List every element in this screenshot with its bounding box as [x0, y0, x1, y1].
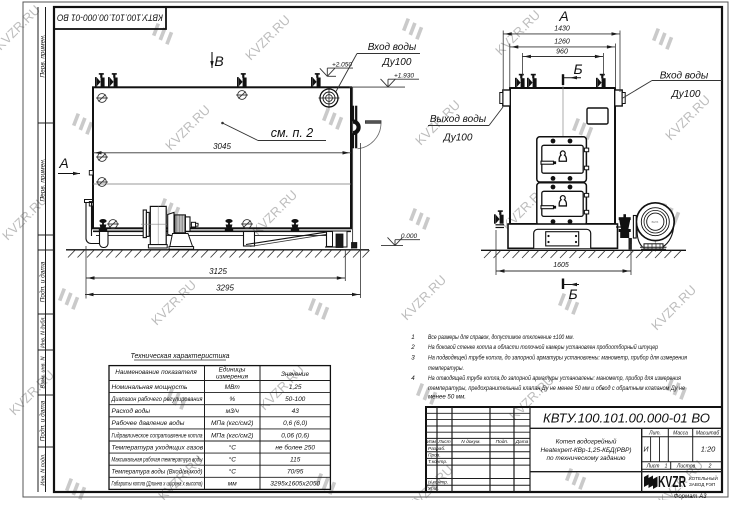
svg-text:1430: 1430 [554, 26, 570, 33]
svg-text:Инв. N дубл.: Инв. N дубл. [41, 316, 47, 348]
svg-text:Температура уходящих газов: Температура уходящих газов [112, 443, 204, 451]
svg-text:N докум.: N докум. [461, 439, 480, 445]
svg-text:Н.контр.: Н.контр. [428, 479, 448, 485]
svg-text:Гидравлическое сопративление к: Гидравлическое сопративление котла [112, 431, 203, 439]
svg-text:Масса: Масса [673, 431, 688, 437]
svg-text:1: 1 [665, 464, 668, 470]
svg-text:Перв. примен.: Перв. примен. [40, 158, 47, 201]
svg-text:Б: Б [573, 61, 582, 77]
svg-text:КВТУ.100.101.00.000-01 ВО: КВТУ.100.101.00.000-01 ВО [543, 411, 710, 426]
svg-text:КВТУ.100.101.00.000-01 ВО: КВТУ.100.101.00.000-01 ВО [56, 12, 163, 23]
svg-text:МВт: МВт [225, 384, 241, 391]
svg-text:м3/ч: м3/ч [226, 408, 240, 415]
svg-text:°С: °С [229, 443, 237, 451]
svg-text:Вход воды: Вход воды [660, 71, 709, 82]
svg-text:температуры, предохранительный: температуры, предохранительный клапан Ду… [428, 385, 685, 392]
svg-text:4: 4 [411, 375, 415, 382]
svg-text:ЗАВОД РЭП: ЗАВОД РЭП [689, 482, 715, 487]
svg-text:3295: 3295 [216, 284, 234, 293]
svg-text:см. п. 2: см. п. 2 [271, 126, 314, 140]
svg-text:Подп.: Подп. [496, 439, 509, 445]
svg-text:Ду100: Ду100 [382, 57, 412, 68]
svg-text:Лист: Лист [646, 464, 660, 470]
svg-text:Масштаб: Масштаб [696, 431, 720, 437]
svg-text:Изм: Изм [427, 439, 437, 445]
svg-text:Техническая характеристика: Техническая характеристика [130, 353, 229, 360]
svg-text:Б: Б [568, 286, 577, 302]
svg-text:1,25: 1,25 [289, 384, 302, 391]
svg-text:КОТЕЛЬНЫЙ: КОТЕЛЬНЫЙ [689, 474, 718, 481]
svg-text:Лит.: Лит. [648, 431, 661, 437]
svg-text:1: 1 [411, 334, 414, 341]
svg-text:0,6 (6,0): 0,6 (6,0) [283, 420, 307, 427]
svg-text:3: 3 [411, 354, 415, 361]
svg-text:70/95: 70/95 [287, 469, 304, 476]
svg-text:Разраб.: Разраб. [428, 446, 445, 452]
svg-text:43: 43 [292, 408, 300, 415]
svg-text:°С: °С [229, 456, 237, 464]
svg-text:Диапазон рабочего регулировани: Диапазон рабочего регулирования [111, 395, 203, 403]
svg-text:мм: мм [228, 481, 237, 488]
svg-text:Все размеры для справок, допус: Все размеры для справок, допустимое откл… [428, 334, 574, 341]
svg-text:0.000: 0.000 [401, 233, 418, 240]
svg-text:МПа (кгс/см2): МПа (кгс/см2) [211, 420, 253, 427]
svg-text:Котел водогрейный: Котел водогрейный [556, 438, 617, 446]
svg-text:МПа (кгс/см2): МПа (кгс/см2) [211, 432, 253, 439]
svg-text:°С: °С [229, 468, 237, 476]
svg-text:Листов: Листов [676, 464, 696, 470]
svg-text:Heatexpert-КВр-1,25-КБД(РВР): Heatexpert-КВр-1,25-КБД(РВР) [541, 447, 632, 454]
svg-text:Утв.: Утв. [428, 486, 439, 492]
svg-text:Значение: Значение [281, 371, 309, 378]
svg-text:Т.контр.: Т.контр. [428, 459, 447, 465]
svg-text:50-100: 50-100 [285, 396, 306, 403]
svg-text:0,06 (0,6): 0,06 (0,6) [281, 432, 309, 439]
svg-text:1260: 1260 [554, 39, 570, 46]
svg-text:Единицы: Единицы [219, 366, 246, 374]
svg-text:ВЕНЗ: ВЕНЗ [652, 221, 659, 224]
svg-text:Подп. и дата: Подп. и дата [39, 261, 47, 302]
svg-text:2: 2 [708, 464, 712, 470]
svg-text:KVZR: KVZR [658, 474, 686, 491]
svg-text:Ду100: Ду100 [443, 133, 473, 144]
svg-text:960: 960 [556, 49, 568, 56]
svg-text:Рабочее давление воды: Рабочее давление воды [112, 419, 185, 427]
svg-text:А: А [558, 8, 568, 24]
svg-text:Максимальная рабочая температу: Максимальная рабочая температура воды [112, 456, 203, 464]
svg-text:А: А [58, 155, 68, 171]
svg-text:3295х1605х2050: 3295х1605х2050 [270, 481, 320, 488]
svg-text:1605: 1605 [553, 262, 569, 269]
svg-text:На отводящей трубе котла,до за: На отводящей трубе котла,до запорной арм… [428, 375, 682, 382]
svg-text:Выход воды: Выход воды [430, 114, 487, 125]
svg-text:Расход воды: Расход воды [112, 407, 151, 415]
svg-text:температуры.: температуры. [428, 365, 464, 372]
svg-text:измерения: измерения [216, 374, 249, 381]
svg-text:Дата: Дата [515, 439, 529, 445]
svg-text:Инв. N подл.: Инв. N подл. [41, 453, 47, 485]
svg-text:Пров.: Пров. [428, 453, 441, 459]
svg-text:Температура воды (Вход/выход): Температура воды (Вход/выход) [112, 468, 203, 476]
svg-text:Габариты котла (Длинна х ширин: Габариты котла (Длинна х ширина х высота… [112, 480, 203, 488]
svg-text:На подводящей трубе котла, д: На подводящей трубе котла, до запорной а… [428, 354, 688, 361]
svg-text:Лист: Лист [437, 439, 450, 445]
svg-text:Вход воды: Вход воды [368, 42, 417, 53]
svg-text:2: 2 [410, 344, 415, 351]
svg-text:по техническому заданию: по техническому заданию [547, 454, 626, 462]
svg-text:менее 50 мм.: менее 50 мм. [428, 394, 466, 401]
svg-text:В: В [214, 53, 223, 69]
svg-text:3125: 3125 [209, 267, 227, 276]
svg-text:На боковой стенке котла в обла: На боковой стенке котла в области топочн… [428, 344, 658, 351]
svg-text:не более 250: не более 250 [275, 443, 315, 451]
svg-text:Формат А3: Формат А3 [674, 494, 707, 500]
svg-text:115: 115 [290, 457, 301, 464]
svg-text:Подп. и дата: Подп. и дата [39, 400, 47, 441]
svg-text:3045: 3045 [213, 142, 231, 151]
svg-text:Перв. примен.: Перв. примен. [40, 34, 47, 77]
svg-text:Взам. инв. N: Взам. инв. N [41, 356, 47, 388]
svg-text:%: % [229, 396, 235, 403]
svg-text:Наименование показателя: Наименование показателя [115, 369, 197, 376]
svg-text:Номинальная мощность: Номинальная мощность [112, 384, 189, 391]
svg-text:Ду100: Ду100 [671, 89, 701, 100]
svg-text:+1.930: +1.930 [394, 73, 414, 80]
svg-text:1:20: 1:20 [701, 445, 716, 454]
